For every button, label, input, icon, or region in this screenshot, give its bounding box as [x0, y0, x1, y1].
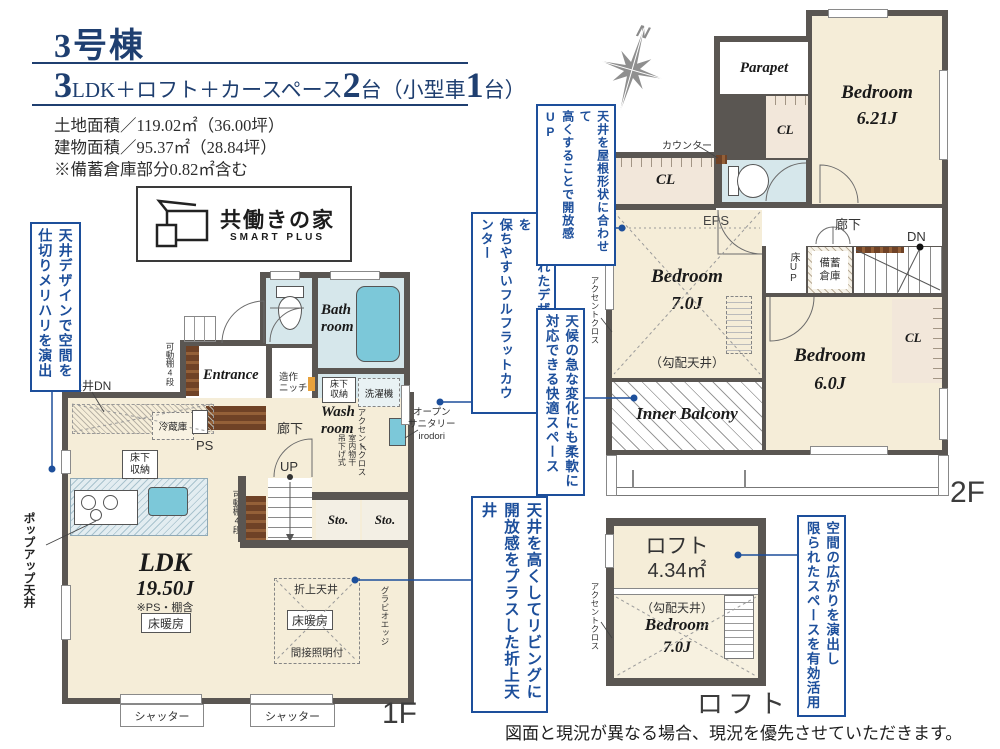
- loft-size: 4.34㎡: [616, 554, 738, 583]
- land-area: 土地面積／119.02㎡（36.00坪）: [54, 112, 284, 136]
- floor-heating-coffer: 床暖房: [287, 610, 333, 630]
- closet621-hanger: [766, 96, 808, 105]
- building-area: 建物面積／95.37㎡（28.84坪）: [54, 134, 277, 158]
- ldk-size: 19.50J: [126, 576, 204, 601]
- f1-wall-stair-left: [238, 476, 246, 542]
- niche-line2: ニッチ: [279, 383, 308, 394]
- bedroom70-sloped-ceiling: （勾配天井）: [618, 352, 756, 371]
- bedroom621-size: 6.21J: [818, 108, 936, 129]
- wash-line1: Wash: [321, 404, 355, 421]
- parapet-label: Parapet: [740, 60, 788, 77]
- callout-weather-l1: 天候の急な変化にも柔軟に: [561, 314, 581, 490]
- ps-shaft: [192, 410, 208, 434]
- stock-line2: 倉庫: [820, 270, 841, 283]
- window-bath: [330, 271, 380, 280]
- f2-balcony-rail: [612, 487, 942, 496]
- fridge-box: 冷蔵庫: [152, 412, 194, 440]
- bathtub-icon: [356, 286, 400, 362]
- window-ldk-west-1: [61, 585, 71, 640]
- coffered-label: 折上天井: [276, 581, 356, 597]
- f1-bath-label: Bath room: [321, 302, 354, 337]
- closet621-label: CL: [777, 122, 794, 138]
- stock-storage-label: 備蓄 倉庫: [812, 251, 848, 289]
- callout-ceiling-design-l1: 天井デザインで空間を: [55, 228, 75, 386]
- brand-logo: 共働きの家 SMART PLUS: [136, 186, 352, 262]
- floor-heating-ldk-text: 床暖房: [148, 615, 184, 632]
- shutter1-label: シャッター: [135, 708, 190, 724]
- logo-name: 共働きの家: [220, 204, 335, 234]
- f1-sto-2: Sto.: [362, 500, 408, 540]
- sto2-label: Sto.: [375, 512, 396, 528]
- f1-wall-sto-top: [312, 492, 408, 500]
- bedroom621-name: Bedroom: [818, 82, 936, 104]
- window-60-south: [810, 446, 888, 455]
- f1-up-label: UP: [280, 459, 298, 474]
- indirect-light-label: 間接照明付: [279, 645, 355, 660]
- bath-line2: room: [321, 319, 354, 336]
- burner-1: [81, 495, 96, 510]
- f1-accent-cloth-label: アクセントクロス: [356, 408, 368, 498]
- layout-text-3: 台）: [484, 78, 526, 102]
- floor-label-2f: 2F: [950, 476, 985, 510]
- entrance-step: [206, 406, 266, 430]
- callout-roof-shape: 天井を屋根形状に合わせて 高くすることで開放感UP: [536, 104, 616, 266]
- disclaimer: 図面と現況が異なる場合、現況を優先させていただきます。: [505, 719, 962, 744]
- loft-caption: ロフト: [697, 684, 790, 721]
- floorplan-sheet: 3号棟 3LDK＋ロフト＋カースペース2台（小型車1台） 土地面積／119.02…: [0, 0, 1000, 749]
- loft-ladder-zone: [726, 296, 752, 354]
- layout-num-2: 2: [343, 65, 361, 105]
- washer-box: 洗濯機: [358, 378, 400, 407]
- underfloor-ldk-text: 床下収納: [128, 453, 152, 476]
- f1-stairs: [268, 478, 312, 542]
- f2-parapet: Parapet: [720, 42, 808, 94]
- f1-underfloor-storage-ldk: 床下収納: [122, 450, 158, 479]
- callout-oriage-ceiling: 天井を高くしてリビングに 開放感をプラスした折上天井: [471, 496, 548, 713]
- bedroom70-name: Bedroom: [618, 266, 756, 288]
- window-loft-west: [605, 534, 614, 568]
- floor-up-label: 床UP: [786, 252, 801, 294]
- f1-wall-sto-bottom: [240, 540, 408, 548]
- sink-icon: [148, 487, 188, 516]
- window-60-east: [939, 388, 948, 440]
- logo-sub: SMART PLUS: [230, 232, 325, 243]
- counter-marker: [716, 155, 727, 164]
- bedroom60-size: 6.0J: [770, 373, 890, 394]
- loft-ladder: [724, 595, 754, 659]
- f2-balcony-tick-1: [632, 470, 634, 488]
- layout-text-1: LDK＋ロフト＋カースペース: [72, 78, 343, 102]
- bedroom60-name: Bedroom: [770, 345, 890, 367]
- layout-num-1: 1: [466, 65, 484, 105]
- callout-loft-l2: 限られたスペースを有効活用: [802, 521, 822, 711]
- counter-label: カウンター: [662, 137, 712, 152]
- f2-corridor-label: 廊下: [835, 214, 861, 233]
- f2-balcony-tick-2: [744, 470, 746, 488]
- compass-icon: N: [592, 14, 672, 118]
- burner-2: [103, 495, 118, 510]
- floor-heating-ldk: 床暖房: [141, 613, 191, 633]
- f1-indoor-drying-label: 室内物干 吊下げ式: [336, 434, 357, 466]
- porch-canopy: [184, 316, 216, 342]
- ps-label: PS: [196, 438, 213, 453]
- bdot-flat-counter: [437, 399, 444, 406]
- loft-bedroom-size: 7.0J: [616, 639, 738, 657]
- eps-label: EPS: [703, 213, 729, 228]
- callout-loft-l1: 空間の広がりを演出し: [822, 521, 842, 711]
- underfloor-text: 床下収納: [328, 380, 350, 400]
- callout-flat-counter-l2: 保ちやすいフルフラットカウンター: [476, 218, 514, 408]
- window-621-north: [828, 9, 888, 18]
- floor-label-1f: 1F: [382, 697, 417, 731]
- f1-sto-1: Sto.: [316, 500, 360, 540]
- f1-corridor-label: 廊下: [277, 418, 303, 437]
- f1-entrance-label: Entrance: [203, 367, 259, 384]
- door-arc-entrance: [222, 301, 264, 343]
- layout-text-2: 台（小型車: [361, 78, 466, 102]
- bdot-ceiling-design: [49, 466, 56, 473]
- window-621-east: [939, 70, 948, 160]
- callout-roof-l1: 天井を屋根形状に合わせて: [576, 110, 611, 260]
- open-sanitary-label: オープン サニタリー irodori: [408, 407, 456, 443]
- floor-heating-coffer-text: 床暖房: [292, 612, 328, 629]
- f1-shelf-label: 可動棚4段: [164, 342, 176, 400]
- burner-3: [90, 509, 102, 521]
- title-rule-bottom: [32, 104, 468, 106]
- f2-accent-cloth-label: アクセントクロス: [589, 276, 601, 362]
- window-ldk-south-2: [250, 694, 333, 704]
- stock-line1: 備蓄: [820, 257, 841, 270]
- washer-label: 洗濯機: [365, 386, 394, 400]
- niche-line1: 造作: [279, 372, 308, 383]
- loft-edge-rail: [614, 588, 758, 595]
- window-toilet-1f: [270, 271, 300, 280]
- closet-top-label: CL: [656, 172, 675, 189]
- callout-oriage-l2: 開放感をプラスした折上天井: [476, 502, 521, 707]
- entrance-shelf: [186, 346, 199, 396]
- page-title: 3号棟: [54, 18, 145, 67]
- closet-top-hanger: [612, 158, 714, 167]
- f2-balcony-post-left: [606, 455, 617, 496]
- shutter-box-2: シャッター: [250, 704, 335, 727]
- loft-bedroom-name: Bedroom: [616, 615, 738, 635]
- f1-stair-shelf: [246, 496, 266, 542]
- f2-balcony-post-right: [938, 455, 949, 496]
- popup-ceiling-label: ポップアップ天井: [21, 512, 38, 622]
- inner-balcony-label: Inner Balcony: [616, 404, 758, 424]
- loft-sloped-ceiling: （勾配天井）: [616, 599, 738, 616]
- dn-label: DN: [907, 229, 926, 244]
- callout-ceiling-design: 天井デザインで空間を 仕切りメリハリを演出: [30, 222, 81, 392]
- f2-stairs: [854, 247, 942, 293]
- toilet2f-bowl-icon: [737, 164, 769, 198]
- callout-weather: 天候の急な変化にも柔軟に 対応できる快適スペース: [536, 308, 585, 496]
- sto1-label: Sto.: [328, 512, 349, 528]
- loft-accent-cloth-label: アクセントクロス: [589, 582, 601, 668]
- callout-oriage-l1: 天井を高くしてリビングに: [521, 502, 543, 707]
- f1-niche-label: 造作 ニッチ: [279, 372, 308, 395]
- callout-weather-l2: 対応できる快適スペース: [541, 314, 561, 490]
- f2-stair-rail: [856, 247, 904, 253]
- ldk-name: LDK: [133, 548, 197, 578]
- callout-ceiling-design-l2: 仕切りメリハリを演出: [35, 228, 55, 386]
- layout-num-3: 3: [54, 65, 72, 105]
- fridge-label: 冷蔵庫: [159, 419, 188, 433]
- logo-house-icon: [152, 198, 214, 250]
- stove-icon: [74, 490, 138, 525]
- shutter-box-1: シャッター: [120, 704, 204, 727]
- callout-loft-space: 空間の広がりを演出し 限られたスペースを有効活用: [797, 515, 846, 717]
- callout-roof-l2: 高くすることで開放感UP: [541, 110, 576, 260]
- gravio-edge-label: グラビオエッジ: [379, 586, 391, 662]
- f1-underfloor-storage-wash: 床下収納: [322, 377, 356, 403]
- opensani-line1: オープン: [408, 407, 456, 419]
- closet60-hanger: [933, 299, 942, 383]
- drying-line2: 吊下げ式: [336, 434, 346, 466]
- opensani-line3: irodori: [408, 431, 456, 443]
- layout-subtitle: 3LDK＋ロフト＋カースペース2台（小型車1台）: [54, 64, 526, 102]
- niche-marker: [308, 377, 315, 391]
- area-note: ※備蓄倉庫部分0.82㎡含む: [54, 156, 248, 180]
- window-ldk-south-1: [120, 694, 202, 704]
- window-ldk-west-2: [61, 450, 71, 474]
- opensani-line2: サニタリー: [408, 419, 456, 431]
- shutter2-label: シャッター: [265, 708, 320, 724]
- closet60-label: CL: [905, 330, 922, 346]
- bath-line1: Bath: [321, 302, 354, 319]
